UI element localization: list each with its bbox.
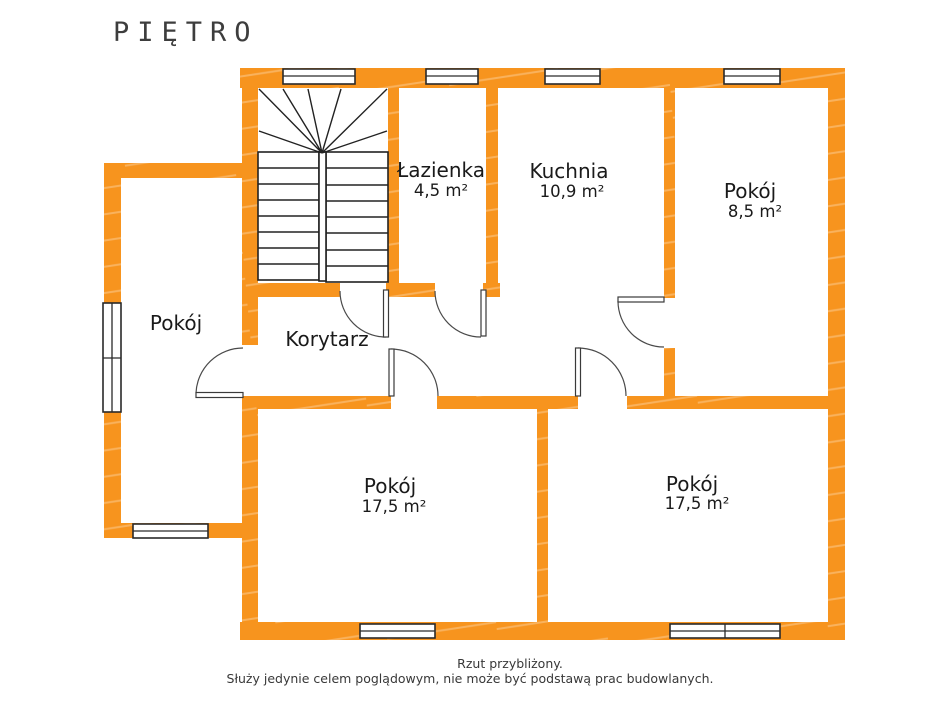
disclaimer-line-1: Rzut przybliżony. <box>457 656 563 671</box>
door-small-room-leaf <box>618 297 664 302</box>
room-label-kitchen: Kuchnia <box>530 159 609 183</box>
room-area-kitchen: 10,9 m² <box>540 182 605 201</box>
door-bathroom-arc <box>435 291 481 337</box>
doors <box>196 290 664 398</box>
wall-exterior-right <box>828 68 845 640</box>
room-area-small-room: 8,5 m² <box>728 202 782 221</box>
room-label-bathroom: Łazienka <box>396 158 485 182</box>
wall-main-left-upper <box>242 68 258 345</box>
wall-corridor-top-mid <box>386 283 435 297</box>
wall-mid-horizontal-center <box>437 396 578 409</box>
room-label-bottom-right-room: Pokój <box>666 472 718 496</box>
floor-plan-drawing: Łazienka 4,5 m² Kuchnia 10,9 m² Pokój 8,… <box>0 0 952 724</box>
wall-bottom-rooms-divider <box>537 396 548 640</box>
wall-kitchen-smallroom-upper <box>664 68 675 298</box>
walls <box>104 68 845 640</box>
room-area-bottom-right-room: 17,5 m² <box>665 494 730 513</box>
floor-plan-page: PIĘTRO <box>0 0 952 724</box>
room-label-bottom-left-room: Pokój <box>364 474 416 498</box>
door-bottom-left-room-leaf <box>389 349 394 396</box>
wall-stairs-bathroom <box>388 68 399 297</box>
room-label-corridor: Korytarz <box>285 327 368 351</box>
door-stairs-leaf <box>384 290 389 337</box>
stairs-center-stringer <box>319 152 326 281</box>
wall-left-room-top <box>104 163 258 178</box>
wall-corridor-top-left <box>258 283 340 297</box>
door-bottom-left-room-arc <box>391 349 438 396</box>
room-area-bathroom: 4,5 m² <box>414 181 468 200</box>
windows <box>103 69 780 638</box>
stairs <box>258 89 388 282</box>
room-label-small-room: Pokój <box>724 179 776 203</box>
wall-mid-horizontal-right <box>627 396 845 409</box>
door-left-room-leaf <box>196 393 243 398</box>
door-bottom-right-room-leaf <box>576 348 581 396</box>
door-bottom-right-room-arc <box>578 348 626 396</box>
wall-bathroom-kitchen <box>486 68 498 290</box>
disclaimer-line-2: Służy jedynie celem poglądowym, nie może… <box>227 671 714 686</box>
door-small-room-arc <box>618 301 664 347</box>
door-bathroom-leaf <box>481 290 486 336</box>
wall-mid-horizontal-left <box>242 396 391 409</box>
room-area-bottom-left-room: 17,5 m² <box>362 497 427 516</box>
door-left-room-arc <box>196 348 243 393</box>
room-label-left-room: Pokój <box>150 311 202 335</box>
stairs-winder-lines <box>259 89 387 153</box>
wall-main-left-lower <box>242 396 258 640</box>
